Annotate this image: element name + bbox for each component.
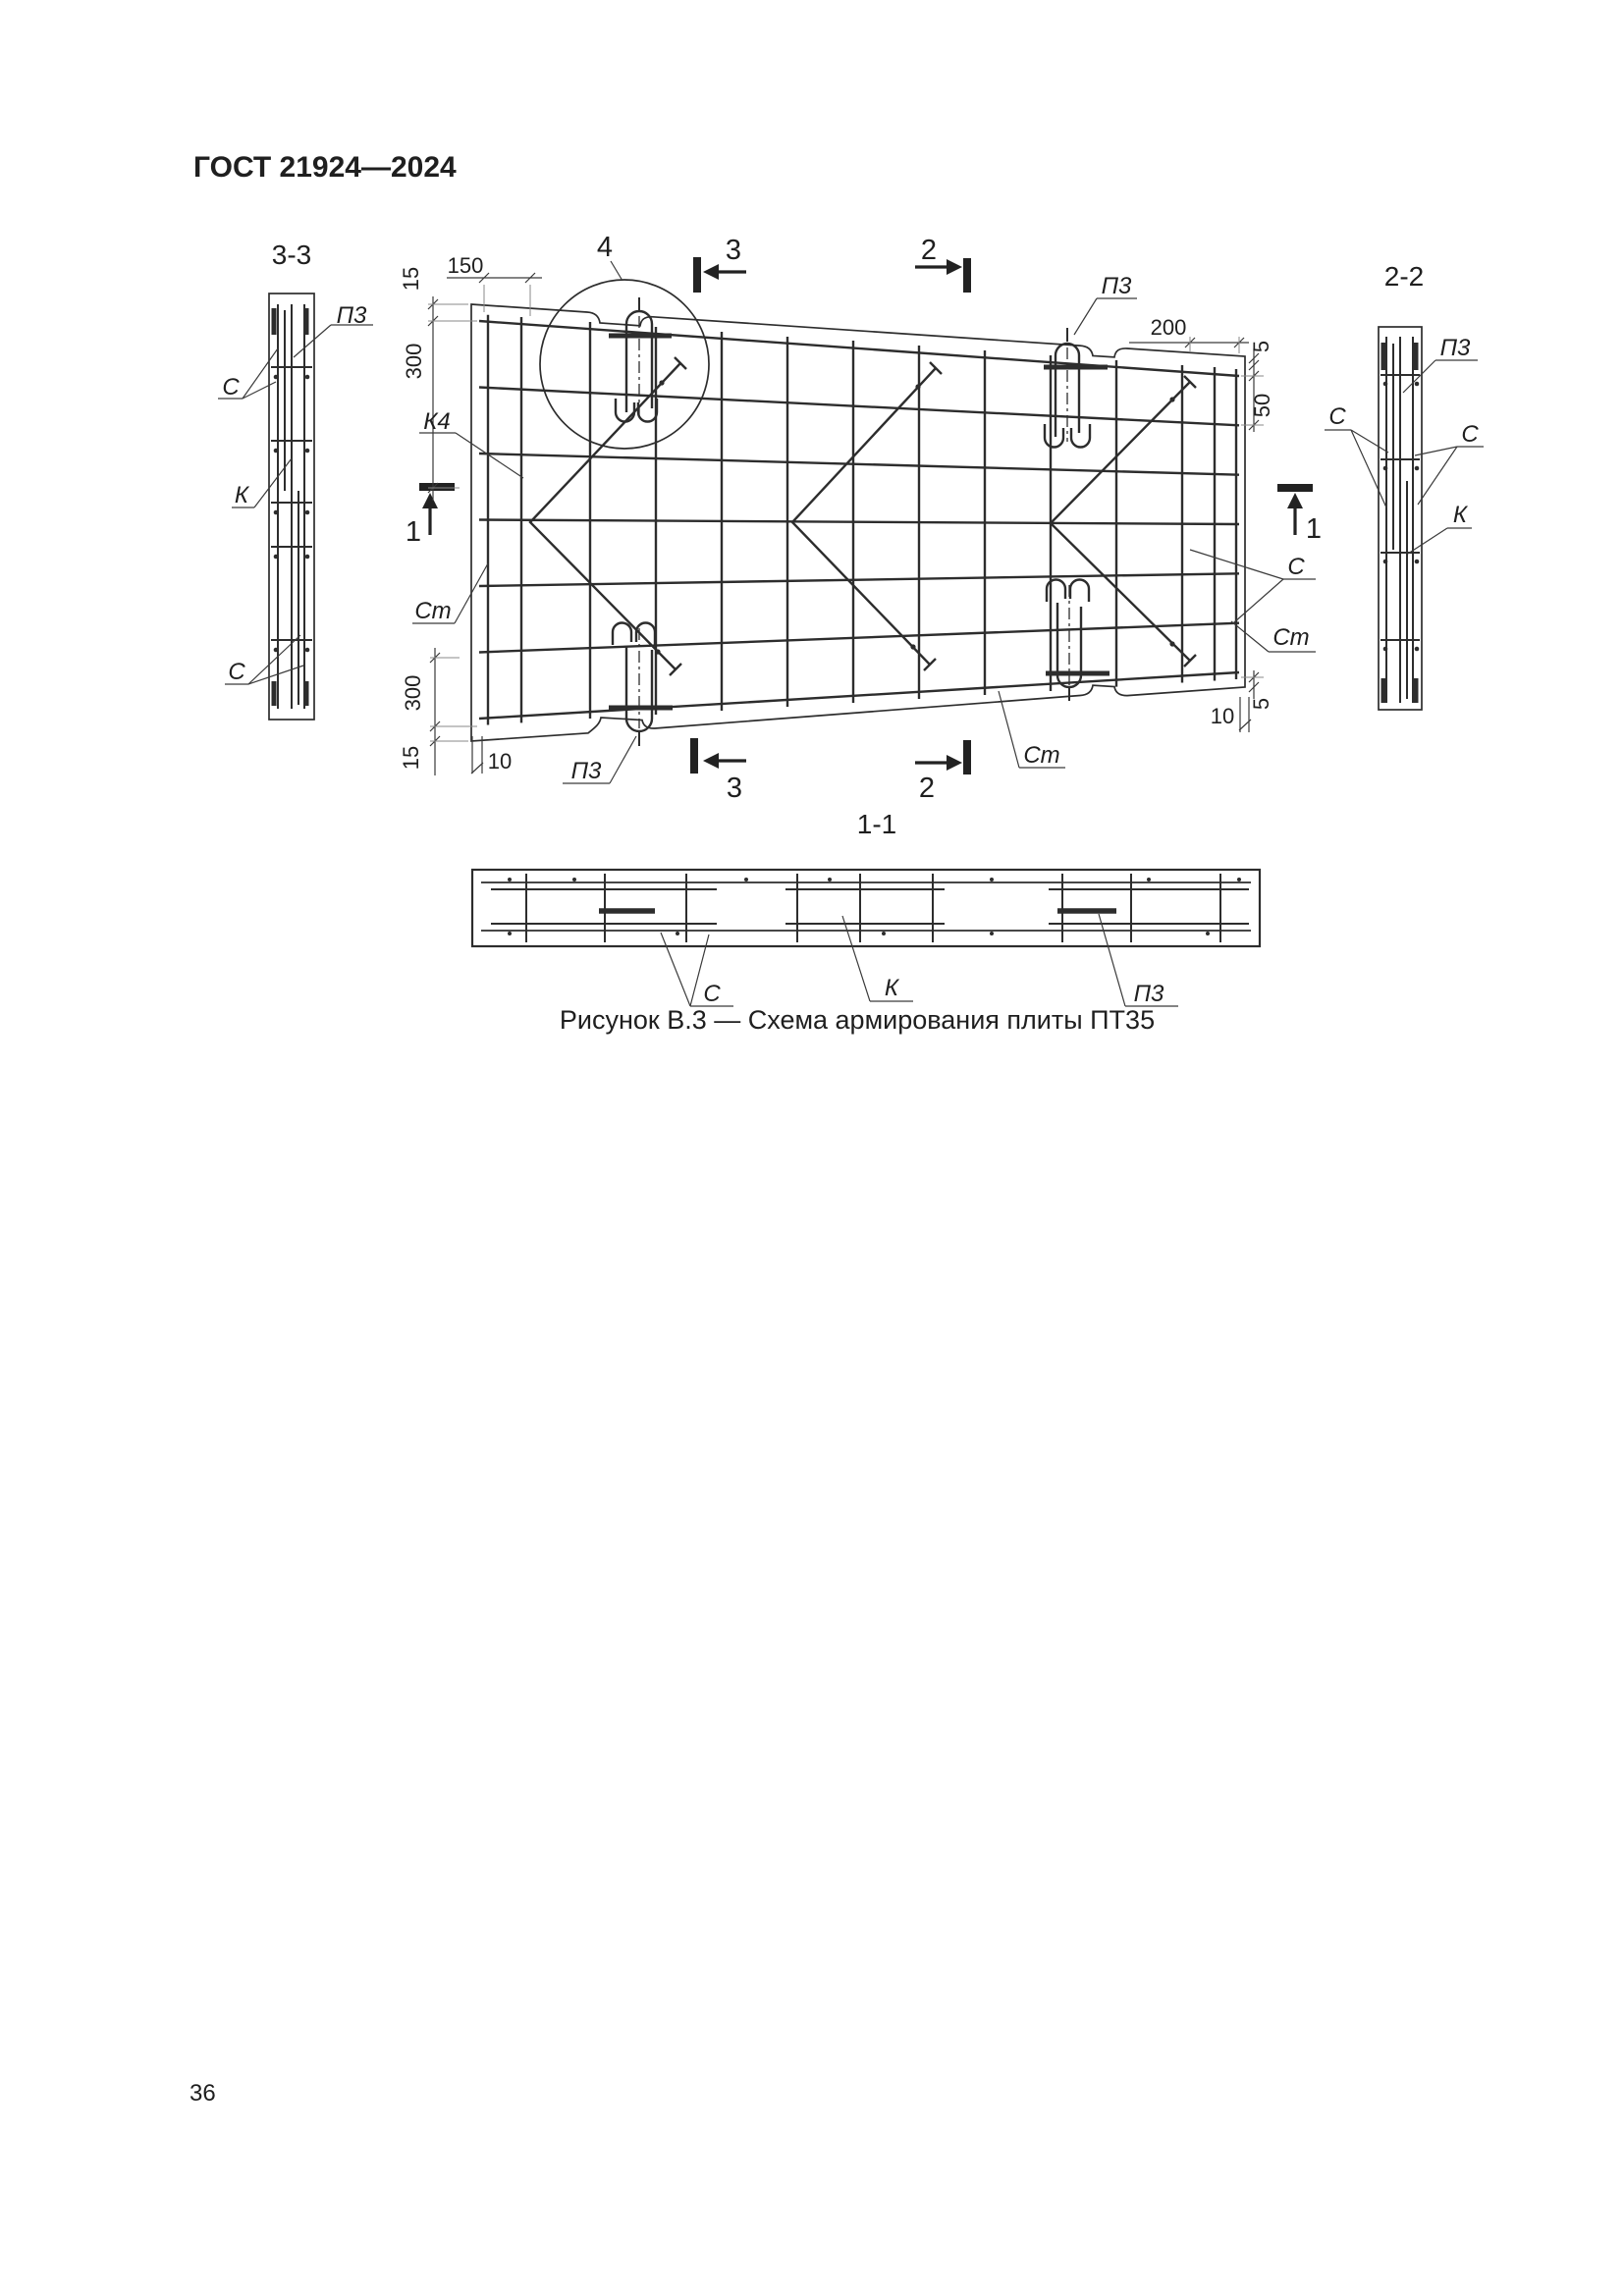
dim-200: 200: [1151, 315, 1187, 340]
mark-c-label: С: [703, 981, 721, 1007]
cut-2-top-label: 2: [921, 235, 937, 266]
lifting-loop-top-right: [1044, 328, 1108, 448]
mark-st-right-label: Ст: [1272, 624, 1309, 651]
section-1-1-bars: [481, 874, 1251, 942]
mark-c-label: С: [1461, 421, 1479, 448]
mark-k4-label: К4: [423, 408, 451, 435]
cut-3-top-label: 3: [726, 235, 741, 266]
mark-st-left-label: Ст: [414, 598, 451, 624]
mark-pz-top-label: П3: [1102, 273, 1132, 299]
cut-3-bottom-label: 3: [727, 773, 742, 804]
section-1-1-outline: [472, 870, 1260, 946]
section-2-2-title: 2-2: [1384, 261, 1424, 292]
detail-circle: 4: [540, 232, 709, 449]
document-page: ГОСТ 21924—2024 36 Рисунок В.3 — Схема а…: [0, 0, 1624, 2296]
section-1-1-labels: С К П3: [661, 914, 1178, 1007]
mark-pz-label: П3: [1134, 981, 1164, 1007]
section-2-2: 2-2 П3 С: [1325, 261, 1484, 710]
cut-1-right-label: 1: [1306, 513, 1322, 545]
dim-300-bottom: 300: [401, 675, 425, 712]
section-3-3: 3-3 П3 С: [218, 240, 373, 720]
section-1-1-title: 1-1: [857, 809, 896, 839]
page-number: 36: [189, 2080, 216, 2107]
section-2-2-labels: П3 С С К: [1325, 335, 1484, 554]
dim-15-bottom: 15: [399, 746, 423, 770]
mark-pz-label: П3: [1440, 335, 1471, 361]
mark-k-label: К: [235, 482, 250, 508]
dim-5-top-right: 5: [1249, 341, 1273, 352]
mesh-longitudinal-bars: [479, 321, 1239, 719]
section-2-2-bars: [1383, 337, 1416, 703]
dim-10-bottom-left: 10: [488, 749, 512, 774]
section-3-3-bars: [274, 304, 306, 709]
mark-k-label: К: [1453, 502, 1469, 528]
section-3-3-title: 3-3: [272, 240, 311, 270]
dim-150: 150: [448, 253, 484, 278]
mark-st-bottom-label: Ст: [1023, 742, 1059, 769]
lifting-loop-top-left: [609, 297, 672, 422]
mark-c-right-label: С: [1287, 554, 1305, 580]
mark-c-label: С: [222, 374, 240, 400]
dim-15-top: 15: [399, 267, 423, 291]
drawing-canvas: ГОСТ 21924—2024 36 Рисунок В.3 — Схема а…: [0, 0, 1624, 2296]
figure-caption: Рисунок В.3 — Схема армирования плиты ПТ…: [560, 1005, 1155, 1035]
page-header: ГОСТ 21924—2024: [193, 151, 457, 184]
section-1-1: 1-1: [472, 809, 1260, 1007]
mark-pz-bottom-label: П3: [571, 758, 602, 784]
dim-5-bottom-right: 5: [1249, 698, 1273, 710]
cut-2-bottom-label: 2: [919, 773, 935, 804]
dim-50: 50: [1250, 394, 1274, 417]
mark-k-label: К: [885, 975, 900, 1001]
section-3-3-labels: П3 С К С: [218, 302, 373, 685]
detail-mark-label: 4: [597, 232, 613, 263]
mark-c-label: С: [228, 659, 245, 685]
cut-1-left-label: 1: [406, 516, 421, 548]
plan-view: 4 3 2 3 2 1 1: [399, 232, 1322, 804]
dim-300-top: 300: [402, 344, 426, 380]
dim-10-bottom-right: 10: [1211, 704, 1234, 728]
mark-c-label: С: [1328, 403, 1346, 430]
